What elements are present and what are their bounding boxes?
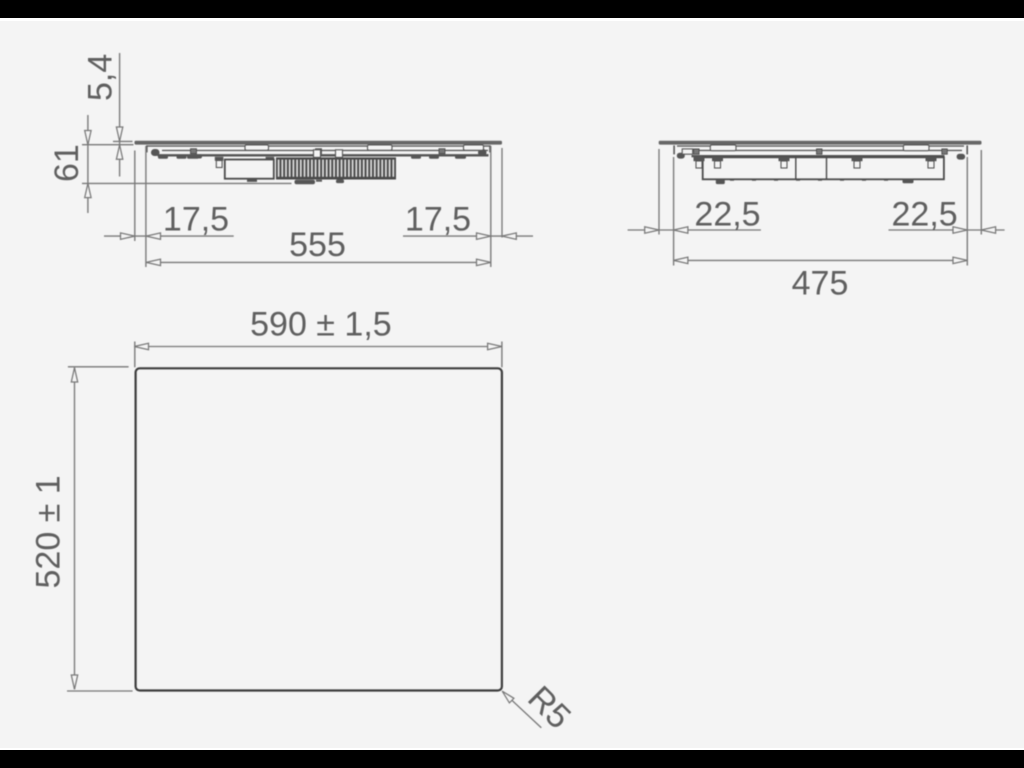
svg-text:520 ± 1: 520 ± 1: [30, 475, 68, 588]
svg-text:17,5: 17,5: [163, 201, 229, 239]
svg-text:R5: R5: [520, 679, 578, 737]
svg-text:22,5: 22,5: [892, 196, 958, 234]
svg-text:590 ± 1,5: 590 ± 1,5: [250, 306, 392, 344]
svg-text:555: 555: [289, 226, 346, 264]
svg-text:17,5: 17,5: [405, 201, 471, 239]
svg-text:5,4: 5,4: [82, 54, 120, 101]
svg-text:22,5: 22,5: [694, 196, 760, 234]
svg-text:475: 475: [792, 265, 849, 303]
svg-text:61: 61: [48, 144, 86, 182]
